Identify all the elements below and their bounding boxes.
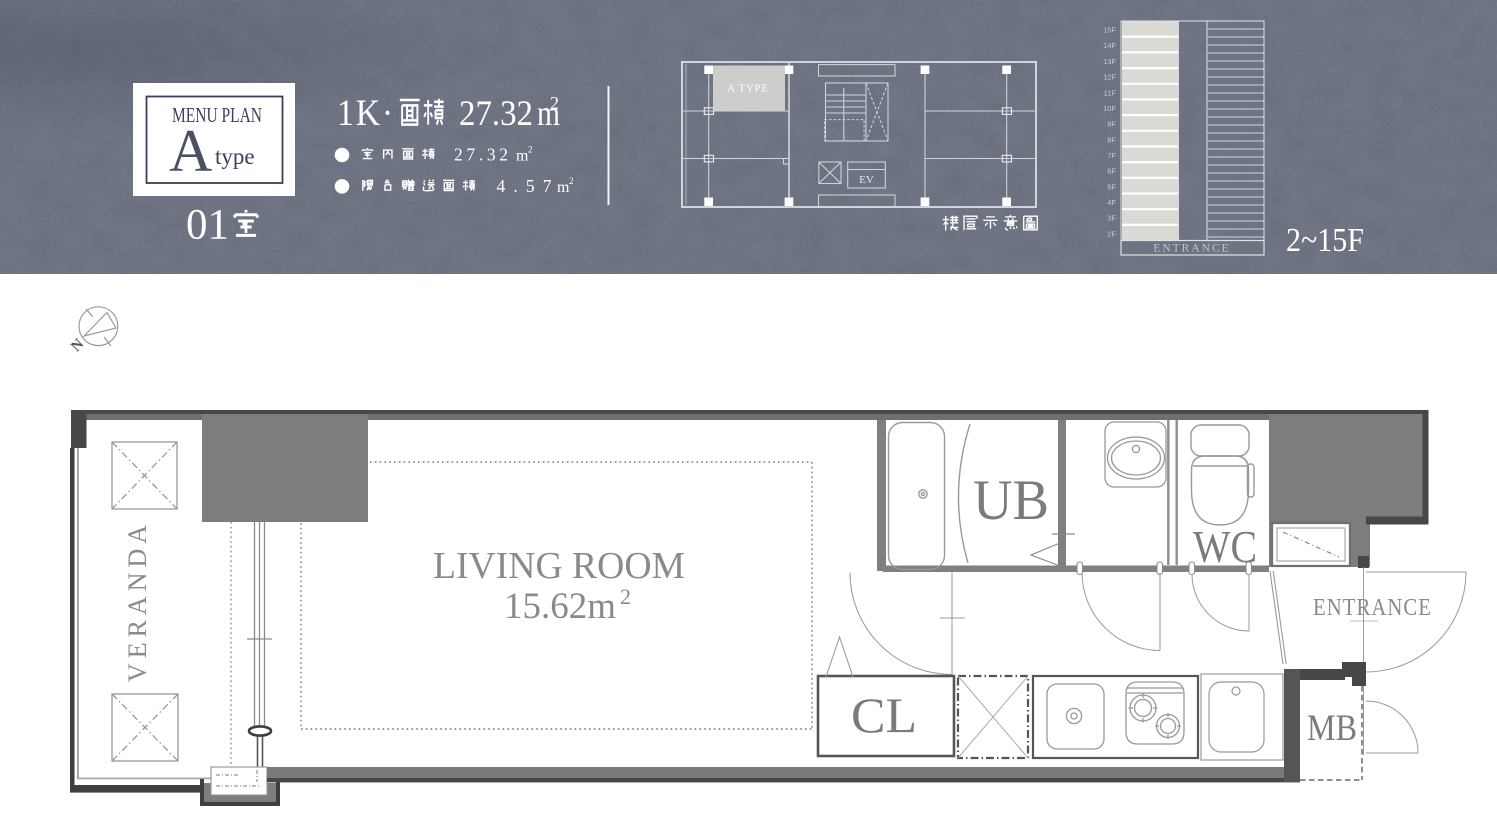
svg-text:9F: 9F bbox=[1107, 120, 1116, 129]
svg-text:3F: 3F bbox=[1107, 214, 1116, 223]
svg-text:14F: 14F bbox=[1103, 41, 1116, 50]
svg-text:01: 01 bbox=[186, 202, 229, 249]
svg-text:6F: 6F bbox=[1107, 167, 1116, 176]
svg-text:15.62m: 15.62m bbox=[504, 586, 616, 627]
svg-text:27.32: 27.32 bbox=[454, 145, 508, 165]
svg-text:2: 2 bbox=[550, 93, 559, 113]
svg-text:11F: 11F bbox=[1104, 88, 1117, 97]
svg-text:ENTRANCE: ENTRANCE bbox=[1313, 595, 1432, 621]
svg-text:A: A bbox=[169, 118, 212, 184]
svg-text:13F: 13F bbox=[1103, 57, 1116, 66]
svg-text:type: type bbox=[215, 144, 255, 169]
svg-text:2: 2 bbox=[620, 584, 631, 609]
svg-text:4F: 4F bbox=[1107, 198, 1116, 207]
svg-text:15F: 15F bbox=[1103, 26, 1116, 35]
svg-text:2~15F: 2~15F bbox=[1286, 222, 1364, 259]
svg-text:A TYPE: A TYPE bbox=[727, 84, 769, 95]
svg-text:MB: MB bbox=[1307, 708, 1357, 749]
svg-text:EV: EV bbox=[859, 174, 874, 186]
svg-text:2F: 2F bbox=[1107, 229, 1116, 238]
svg-text:UB: UB bbox=[973, 469, 1049, 532]
svg-text:ENTRANCE: ENTRANCE bbox=[1153, 243, 1230, 255]
svg-text:N: N bbox=[68, 336, 87, 355]
svg-text:7F: 7F bbox=[1107, 151, 1116, 160]
svg-text:2: 2 bbox=[569, 176, 574, 186]
svg-text:LIVING ROOM: LIVING ROOM bbox=[433, 545, 685, 587]
svg-text:27.32: 27.32 bbox=[459, 93, 533, 133]
svg-text:5F: 5F bbox=[1107, 182, 1116, 191]
svg-text:2: 2 bbox=[528, 145, 533, 155]
svg-text:8F: 8F bbox=[1107, 135, 1116, 144]
svg-text:10F: 10F bbox=[1103, 104, 1116, 113]
svg-text:12F: 12F bbox=[1103, 73, 1116, 82]
svg-text:CL: CL bbox=[851, 687, 917, 743]
svg-text:VERANDA: VERANDA bbox=[123, 520, 152, 682]
svg-text:1K·: 1K· bbox=[337, 93, 395, 134]
